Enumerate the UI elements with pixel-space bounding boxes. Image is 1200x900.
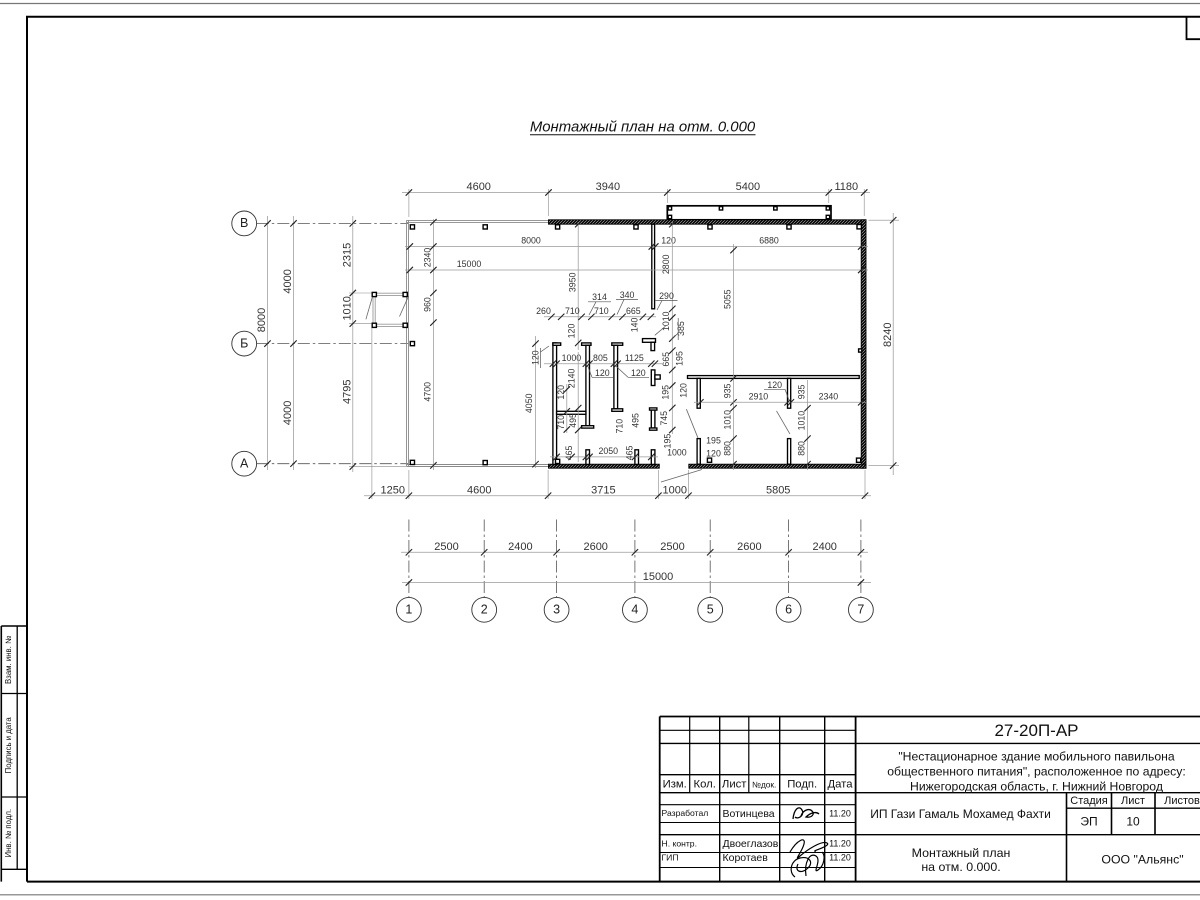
svg-text:Монтажный план на отм. 0.000: Монтажный план на отм. 0.000 [530, 119, 756, 135]
svg-text:1125: 1125 [625, 353, 644, 363]
svg-text:1180: 1180 [834, 181, 858, 193]
svg-text:4050: 4050 [524, 393, 534, 413]
svg-text:Коротаев: Коротаев [723, 852, 769, 864]
svg-text:120: 120 [767, 380, 782, 390]
svg-text:Подпись и дата: Подпись и дата [4, 717, 13, 774]
svg-text:960: 960 [423, 297, 433, 312]
svg-text:ГИП: ГИП [662, 852, 679, 862]
svg-text:10: 10 [1126, 815, 1140, 829]
svg-text:Двоеглазов: Двоеглазов [723, 838, 779, 850]
svg-text:Лист: Лист [1121, 795, 1145, 807]
svg-text:1010: 1010 [342, 296, 354, 320]
svg-text:2800: 2800 [661, 254, 671, 274]
svg-text:495: 495 [631, 413, 641, 428]
svg-text:1250: 1250 [381, 484, 405, 496]
svg-text:745: 745 [659, 411, 669, 426]
svg-text:5400: 5400 [736, 181, 760, 193]
svg-text:ИП Гази Гамаль Мохамед Фахти: ИП Гази Гамаль Мохамед Фахти [870, 807, 1051, 821]
svg-text:Кол.: Кол. [694, 778, 716, 790]
svg-text:11.20: 11.20 [829, 808, 851, 818]
svg-text:2315: 2315 [342, 243, 354, 267]
svg-text:710: 710 [594, 306, 609, 316]
svg-text:8000: 8000 [521, 236, 541, 246]
svg-text:А: А [240, 456, 249, 470]
svg-text:495: 495 [568, 413, 578, 428]
svg-text:3940: 3940 [596, 181, 620, 193]
svg-text:120: 120 [566, 324, 576, 339]
svg-text:3715: 3715 [591, 484, 615, 496]
svg-text:Б: Б [240, 336, 248, 350]
svg-text:4795: 4795 [342, 379, 354, 403]
svg-text:2340: 2340 [819, 391, 839, 401]
svg-text:Листов: Листов [1164, 795, 1200, 807]
svg-text:314: 314 [592, 292, 607, 302]
svg-text:8240: 8240 [882, 322, 894, 346]
svg-text:Изм.: Изм. [663, 778, 687, 790]
svg-text:Вотинцева: Вотинцева [723, 808, 775, 820]
svg-text:ООО "Альянс": ООО "Альянс" [1101, 852, 1183, 866]
svg-text:195: 195 [706, 435, 721, 445]
svg-text:1000: 1000 [667, 448, 687, 458]
svg-text:27-20П-АР: 27-20П-АР [994, 721, 1078, 740]
svg-text:665: 665 [626, 306, 641, 316]
svg-text:2910: 2910 [749, 391, 769, 401]
svg-text:Монтажный план: Монтажный план [912, 846, 1011, 860]
svg-text:880: 880 [797, 441, 807, 456]
svg-text:2600: 2600 [737, 541, 761, 553]
svg-text:Инв. № подл.: Инв. № подл. [4, 809, 13, 858]
svg-text:№док.: №док. [752, 779, 776, 789]
svg-text:195: 195 [661, 385, 671, 400]
svg-text:Разработал: Разработал [662, 808, 709, 818]
svg-text:2340: 2340 [423, 248, 433, 268]
svg-text:Взам. инв. №: Взам. инв. № [4, 636, 13, 684]
svg-text:Нижегородская область, г. Нижн: Нижегородская область, г. Нижний Новгоро… [910, 780, 1163, 794]
svg-text:2500: 2500 [660, 541, 684, 553]
svg-text:465: 465 [625, 445, 635, 460]
svg-text:120: 120 [706, 448, 721, 458]
svg-text:на отм. 0.000.: на отм. 0.000. [921, 860, 1000, 874]
svg-text:1010: 1010 [723, 410, 733, 430]
svg-text:120: 120 [679, 383, 689, 398]
svg-text:1: 1 [405, 603, 412, 617]
svg-text:11.20: 11.20 [829, 853, 851, 863]
svg-text:710: 710 [565, 306, 580, 316]
svg-text:465: 465 [564, 445, 574, 460]
svg-text:Н. контр.: Н. контр. [662, 838, 697, 848]
svg-text:6: 6 [785, 603, 792, 617]
svg-text:5: 5 [707, 603, 714, 617]
svg-text:290: 290 [659, 291, 674, 301]
svg-text:4600: 4600 [467, 484, 491, 496]
svg-text:2500: 2500 [434, 541, 458, 553]
svg-text:120: 120 [595, 368, 610, 378]
svg-text:935: 935 [797, 384, 807, 399]
svg-text:2400: 2400 [508, 541, 532, 553]
svg-text:710: 710 [615, 419, 625, 434]
svg-text:"Нестационарное здание мобильн: "Нестационарное здание мобильного павиль… [898, 750, 1175, 764]
svg-text:120: 120 [661, 236, 676, 246]
svg-text:8000: 8000 [256, 308, 268, 332]
svg-text:710: 710 [556, 415, 566, 430]
svg-text:195: 195 [663, 434, 673, 449]
svg-text:140: 140 [629, 317, 639, 332]
svg-text:Подп.: Подп. [787, 778, 817, 790]
svg-text:935: 935 [723, 383, 733, 398]
svg-text:2: 2 [481, 603, 488, 617]
svg-text:3: 3 [553, 603, 560, 617]
svg-text:1010: 1010 [797, 411, 807, 431]
svg-text:260: 260 [536, 306, 551, 316]
svg-text:Стадия: Стадия [1070, 795, 1108, 807]
svg-text:340: 340 [620, 290, 635, 300]
svg-text:15000: 15000 [643, 571, 674, 583]
svg-text:6880: 6880 [759, 236, 779, 246]
svg-text:120: 120 [531, 350, 541, 365]
svg-text:1000: 1000 [663, 484, 687, 496]
svg-text:4700: 4700 [423, 382, 433, 402]
svg-text:1010: 1010 [661, 311, 671, 331]
svg-text:2600: 2600 [583, 541, 607, 553]
svg-text:4600: 4600 [466, 181, 490, 193]
svg-text:4: 4 [631, 603, 638, 617]
svg-text:4000: 4000 [282, 269, 294, 293]
svg-text:120: 120 [631, 368, 646, 378]
svg-text:2400: 2400 [812, 541, 836, 553]
svg-text:7: 7 [857, 603, 864, 617]
svg-text:5805: 5805 [766, 484, 790, 496]
svg-text:4000: 4000 [282, 401, 294, 425]
svg-text:Лист: Лист [722, 778, 747, 790]
svg-text:общественного питания", распол: общественного питания", расположенное по… [887, 765, 1185, 779]
svg-text:2050: 2050 [599, 446, 619, 456]
svg-text:ЭП: ЭП [1080, 815, 1097, 829]
svg-text:195: 195 [675, 351, 685, 366]
svg-text:805: 805 [593, 353, 608, 363]
svg-text:2140: 2140 [567, 369, 577, 389]
svg-text:5055: 5055 [723, 289, 733, 309]
svg-text:880: 880 [723, 441, 733, 456]
svg-text:Дата: Дата [827, 778, 853, 790]
svg-text:3950: 3950 [567, 272, 577, 292]
svg-text:15000: 15000 [457, 259, 482, 269]
svg-text:В: В [240, 216, 248, 230]
svg-text:11.20: 11.20 [829, 839, 851, 849]
